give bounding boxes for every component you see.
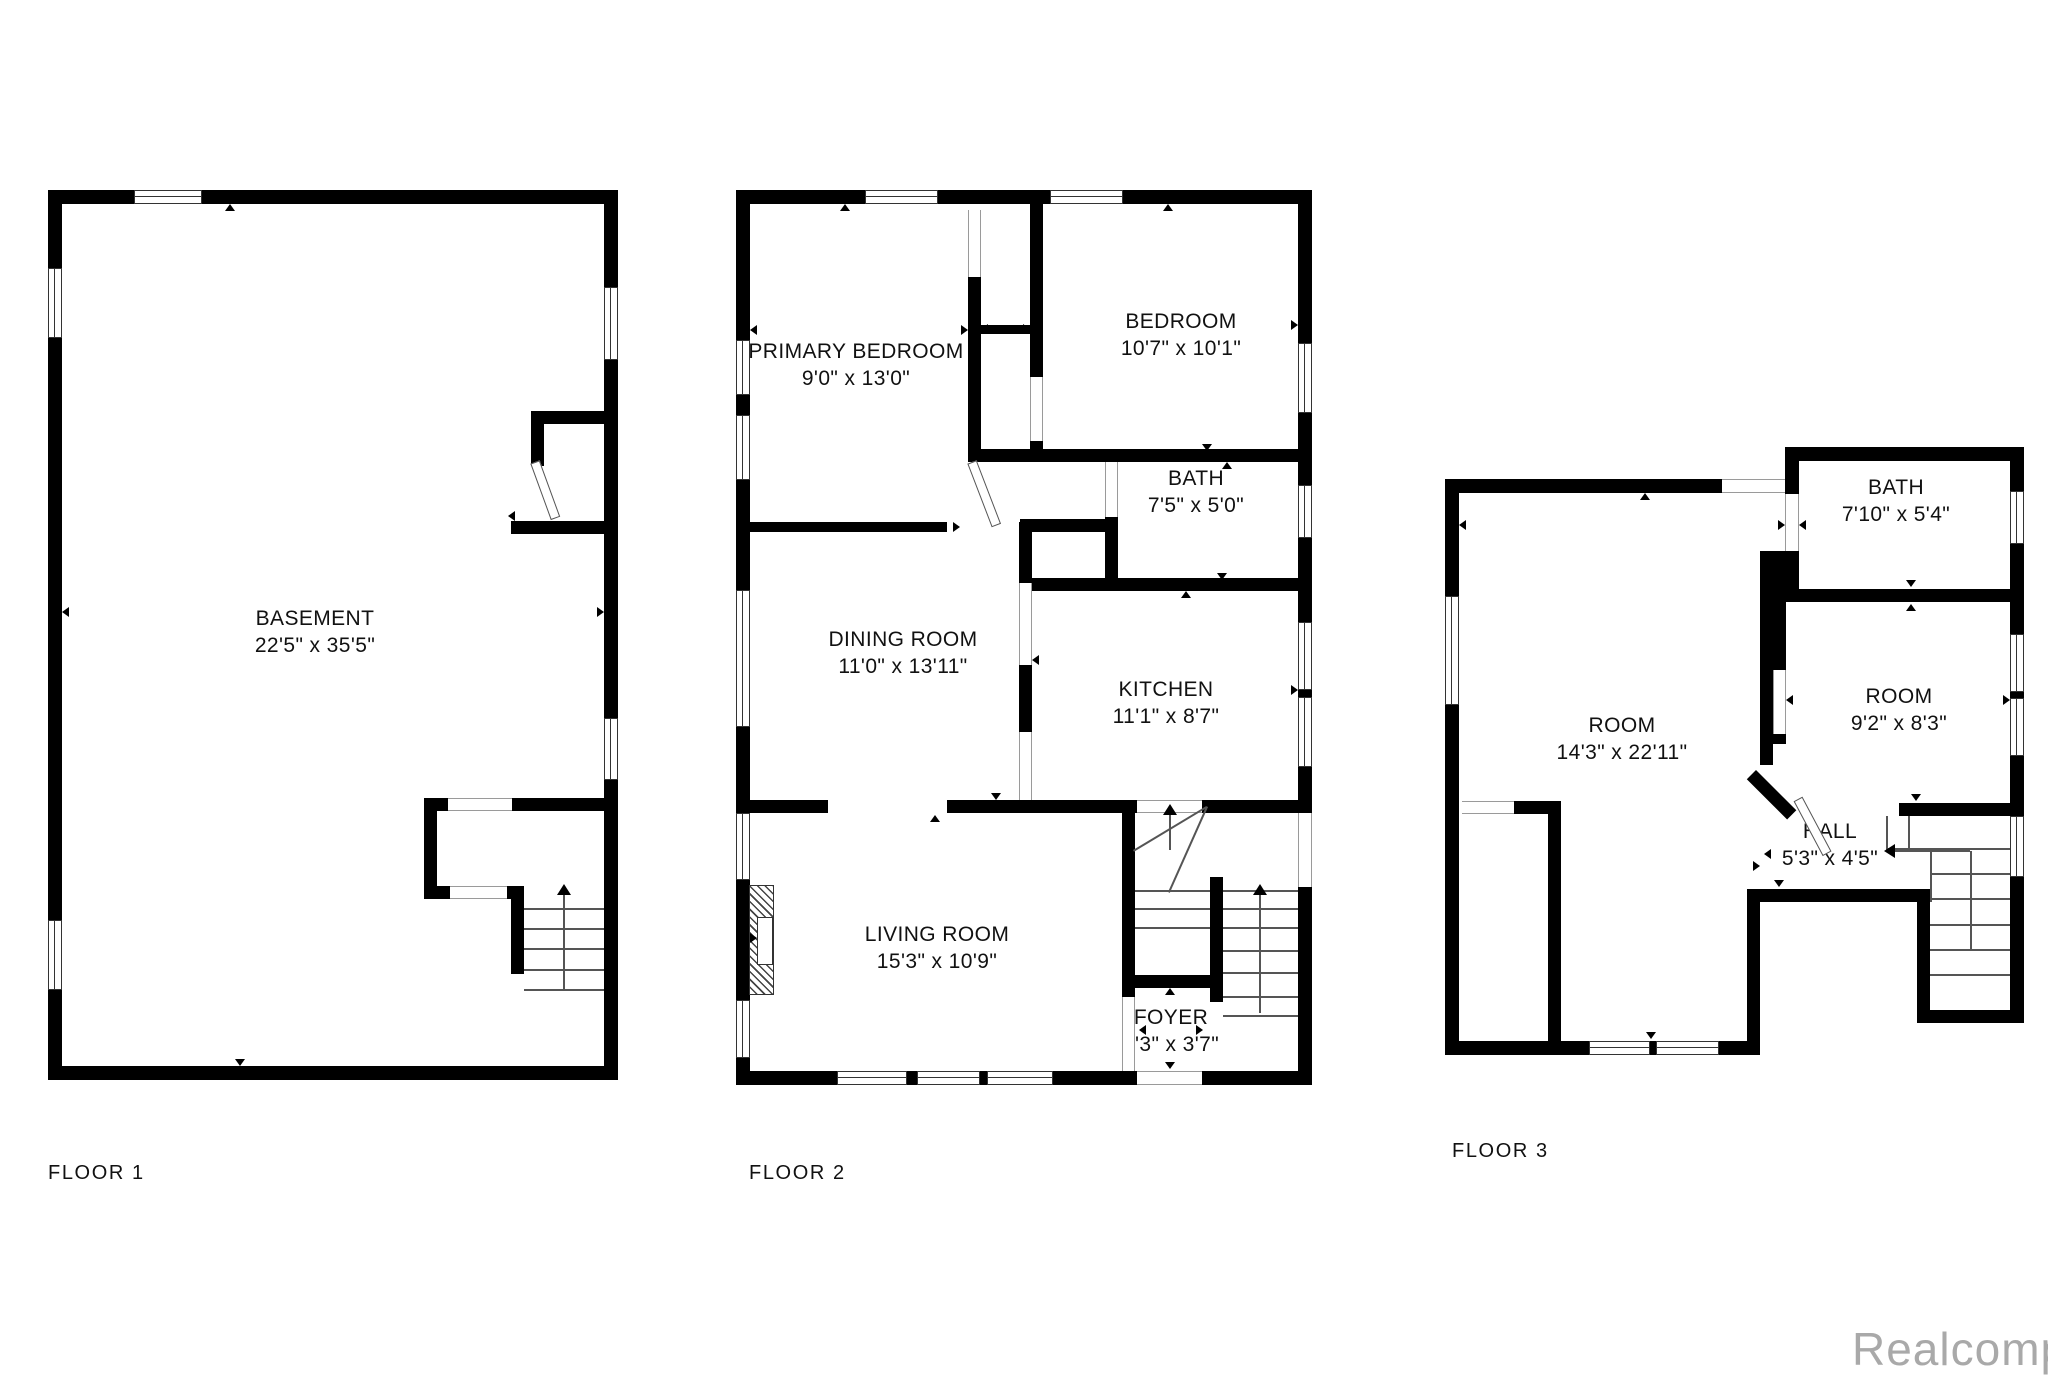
room-dims: 10'7" x 10'1" bbox=[1121, 335, 1241, 362]
wall bbox=[1031, 578, 1298, 591]
room-name: HALL bbox=[1782, 818, 1878, 845]
wall bbox=[1135, 975, 1210, 988]
room-name: FOYER bbox=[1123, 1004, 1219, 1031]
direction-marker bbox=[750, 325, 757, 335]
room-label-foyer: FOYER 3'3" x 3'7" bbox=[1123, 1004, 1219, 1058]
wall bbox=[1899, 803, 2010, 816]
wall bbox=[1445, 479, 1459, 1055]
door-swing bbox=[530, 460, 560, 520]
room-dims: 22'5" x 35'5" bbox=[255, 632, 375, 659]
stair-arrow bbox=[557, 884, 571, 895]
door-opening bbox=[1122, 997, 1135, 1071]
wall bbox=[1773, 734, 1786, 744]
direction-marker bbox=[508, 511, 515, 521]
stair-tread bbox=[1259, 895, 1261, 1013]
room-dims: 9'2" x 8'3" bbox=[1851, 710, 1947, 737]
floor-1-title: FLOOR 1 bbox=[48, 1162, 145, 1185]
wall bbox=[511, 521, 604, 534]
stair-tread bbox=[1930, 848, 1932, 902]
room-label-room-main: ROOM 14'3" x 22'11" bbox=[1557, 712, 1688, 766]
room-dims: 3'3" x 3'7" bbox=[1123, 1031, 1219, 1058]
wall bbox=[1210, 877, 1223, 1002]
window bbox=[987, 1071, 1053, 1085]
window bbox=[736, 415, 750, 480]
wall bbox=[1747, 889, 1760, 1055]
floor-2-title: FLOOR 2 bbox=[749, 1162, 846, 1185]
room-label-living-room: LIVING ROOM 15'3" x 10'9" bbox=[865, 921, 1009, 975]
door-opening bbox=[1785, 494, 1799, 551]
wall bbox=[531, 411, 544, 466]
direction-marker bbox=[961, 325, 968, 335]
direction-marker bbox=[1640, 493, 1650, 500]
direction-marker bbox=[1032, 655, 1039, 665]
room-name: BATH bbox=[1148, 465, 1244, 492]
room-label-bath-2: BATH 7'5" x 5'0" bbox=[1148, 465, 1244, 519]
wall bbox=[1917, 1010, 2024, 1023]
room-dims: 11'1" x 8'7" bbox=[1113, 703, 1220, 730]
direction-marker bbox=[1459, 520, 1466, 530]
window bbox=[1050, 190, 1123, 204]
direction-marker bbox=[1911, 794, 1921, 801]
direction-marker bbox=[1778, 520, 1785, 530]
wall bbox=[1747, 770, 1796, 819]
stair-arrow bbox=[1163, 804, 1177, 815]
window bbox=[736, 590, 750, 727]
direction-marker bbox=[750, 933, 757, 943]
floor-plan-canvas: BASEMENT 22'5" x 35'5" PRIMARY BEDROOM 9… bbox=[0, 0, 2048, 1378]
room-name: BEDROOM bbox=[1121, 308, 1241, 335]
direction-marker bbox=[597, 607, 604, 617]
room-label-kitchen: KITCHEN 11'1" x 8'7" bbox=[1113, 676, 1220, 730]
direction-marker bbox=[62, 607, 69, 617]
door-opening bbox=[1105, 462, 1118, 517]
stair-tread bbox=[1223, 908, 1298, 910]
door-opening bbox=[1137, 1071, 1202, 1085]
wall bbox=[1760, 589, 2024, 602]
wall bbox=[968, 277, 981, 462]
stair-tread bbox=[1930, 974, 2010, 976]
wall bbox=[1917, 902, 1930, 1023]
stair-tread bbox=[1135, 908, 1210, 910]
window bbox=[604, 287, 618, 360]
wall bbox=[1445, 479, 1722, 493]
wall bbox=[424, 798, 437, 899]
wall bbox=[968, 449, 1312, 462]
wall bbox=[48, 1066, 618, 1080]
stair-tread bbox=[1908, 816, 1910, 848]
stair-break-line bbox=[1168, 806, 1208, 892]
room-label-bedroom: BEDROOM 10'7" x 10'1" bbox=[1121, 308, 1241, 362]
door-opening bbox=[1722, 479, 1785, 493]
wall bbox=[1202, 800, 1312, 813]
room-label-bath-3: BATH 7'10" x 5'4" bbox=[1842, 474, 1950, 528]
direction-marker bbox=[1165, 988, 1175, 995]
direction-marker bbox=[1291, 685, 1298, 695]
direction-marker bbox=[1139, 1025, 1146, 1035]
realcomp-watermark: Realcomp bbox=[1852, 1322, 2048, 1376]
wall bbox=[1773, 602, 1786, 670]
wall bbox=[1760, 602, 1773, 765]
stair-arrow bbox=[1884, 844, 1895, 858]
door-opening bbox=[450, 886, 507, 899]
window bbox=[2010, 634, 2024, 692]
wall bbox=[1747, 889, 1930, 902]
direction-marker bbox=[981, 324, 988, 334]
door-swing bbox=[967, 460, 1001, 527]
stair-tread bbox=[563, 886, 565, 990]
room-name: BATH bbox=[1842, 474, 1950, 501]
wall bbox=[1785, 447, 2024, 461]
direction-marker bbox=[1753, 861, 1760, 871]
direction-marker bbox=[1906, 580, 1916, 587]
door-opening bbox=[1773, 670, 1786, 734]
stair-tread bbox=[1135, 890, 1210, 892]
stair-tread bbox=[1970, 851, 1972, 951]
window bbox=[837, 1071, 907, 1085]
window bbox=[736, 340, 750, 395]
direction-marker bbox=[1799, 520, 1806, 530]
room-dims: 7'5" x 5'0" bbox=[1148, 492, 1244, 519]
window bbox=[2010, 491, 2024, 544]
room-dims: 9'0" x 13'0" bbox=[748, 365, 963, 392]
wall bbox=[1760, 551, 1799, 602]
direction-marker bbox=[1165, 1062, 1175, 1069]
wall bbox=[947, 800, 1137, 813]
door-opening bbox=[1019, 583, 1032, 665]
window bbox=[865, 190, 938, 204]
window bbox=[2010, 698, 2024, 756]
direction-marker bbox=[1291, 320, 1298, 330]
direction-marker bbox=[1786, 695, 1793, 705]
wall bbox=[1019, 522, 1032, 583]
direction-marker bbox=[991, 793, 1001, 800]
window bbox=[48, 920, 62, 990]
fireplace-firebox bbox=[757, 917, 773, 965]
room-name: DINING ROOM bbox=[828, 626, 977, 653]
wall bbox=[1020, 519, 1118, 532]
direction-marker bbox=[930, 815, 940, 822]
room-label-primary-bedroom: PRIMARY BEDROOM 9'0" x 13'0" bbox=[748, 338, 963, 392]
door-opening bbox=[448, 798, 512, 811]
wall bbox=[1105, 532, 1118, 580]
room-label-basement: BASEMENT 22'5" x 35'5" bbox=[255, 605, 375, 659]
window bbox=[2010, 816, 2024, 877]
window bbox=[1656, 1041, 1719, 1055]
window bbox=[1298, 485, 1312, 538]
direction-marker bbox=[2003, 695, 2010, 705]
wall bbox=[736, 190, 1312, 204]
direction-marker bbox=[235, 1059, 245, 1066]
direction-marker bbox=[1181, 591, 1191, 598]
room-name: KITCHEN bbox=[1113, 676, 1220, 703]
wall bbox=[511, 886, 524, 974]
room-label-room-right: ROOM 9'2" x 8'3" bbox=[1851, 683, 1947, 737]
window bbox=[1298, 343, 1312, 413]
door-opening bbox=[1462, 801, 1514, 814]
room-dims: 15'3" x 10'9" bbox=[865, 948, 1009, 975]
stair-tread bbox=[1223, 996, 1298, 998]
direction-marker bbox=[1163, 204, 1173, 211]
door-opening bbox=[968, 210, 981, 277]
stair-tread bbox=[1169, 815, 1171, 850]
stair-tread bbox=[1223, 972, 1298, 974]
room-dims: 7'10" x 5'4" bbox=[1842, 501, 1950, 528]
door-opening bbox=[1298, 813, 1312, 887]
wall bbox=[1030, 204, 1043, 377]
window bbox=[1298, 622, 1312, 690]
window bbox=[1298, 697, 1312, 767]
room-name: ROOM bbox=[1851, 683, 1947, 710]
direction-marker bbox=[953, 522, 960, 532]
window bbox=[736, 813, 750, 880]
stair-arrow bbox=[1253, 884, 1267, 895]
direction-marker bbox=[225, 204, 235, 211]
direction-marker bbox=[1764, 849, 1771, 859]
wall bbox=[1019, 665, 1032, 732]
wall bbox=[1122, 810, 1135, 997]
room-name: ROOM bbox=[1557, 712, 1688, 739]
window bbox=[134, 190, 202, 204]
window bbox=[1445, 596, 1459, 705]
direction-marker bbox=[1646, 1032, 1656, 1039]
stair-tread bbox=[1223, 927, 1298, 929]
direction-marker bbox=[1906, 604, 1916, 611]
stair-tread bbox=[1893, 850, 1970, 852]
stair-tread bbox=[1223, 1015, 1298, 1017]
window bbox=[48, 268, 62, 338]
floor-3-title: FLOOR 3 bbox=[1452, 1140, 1549, 1163]
wall bbox=[1514, 801, 1561, 814]
room-dims: 11'0" x 13'11" bbox=[828, 653, 977, 680]
wall bbox=[968, 325, 1043, 334]
direction-marker bbox=[1217, 573, 1227, 580]
direction-marker bbox=[1023, 324, 1030, 334]
wall bbox=[750, 522, 947, 532]
door-opening bbox=[1030, 377, 1043, 441]
stair-tread bbox=[1223, 950, 1298, 952]
window bbox=[736, 1000, 750, 1058]
room-name: PRIMARY BEDROOM bbox=[748, 338, 963, 365]
direction-marker bbox=[840, 204, 850, 211]
room-label-hall: HALL 5'3" x 4'5" bbox=[1782, 818, 1878, 872]
room-label-dining-room: DINING ROOM 11'0" x 13'11" bbox=[828, 626, 977, 680]
room-name: LIVING ROOM bbox=[865, 921, 1009, 948]
direction-marker bbox=[1202, 444, 1212, 451]
door-opening bbox=[1019, 732, 1032, 800]
room-name: BASEMENT bbox=[255, 605, 375, 632]
window bbox=[604, 718, 618, 780]
direction-marker bbox=[1222, 462, 1232, 469]
room-dims: 14'3" x 22'11" bbox=[1557, 739, 1688, 766]
direction-marker bbox=[1196, 1025, 1203, 1035]
wall bbox=[1548, 801, 1561, 1041]
direction-marker bbox=[1774, 880, 1784, 887]
window bbox=[917, 1071, 980, 1085]
window bbox=[1589, 1041, 1650, 1055]
stair-tread bbox=[1135, 927, 1210, 929]
wall bbox=[750, 800, 828, 813]
